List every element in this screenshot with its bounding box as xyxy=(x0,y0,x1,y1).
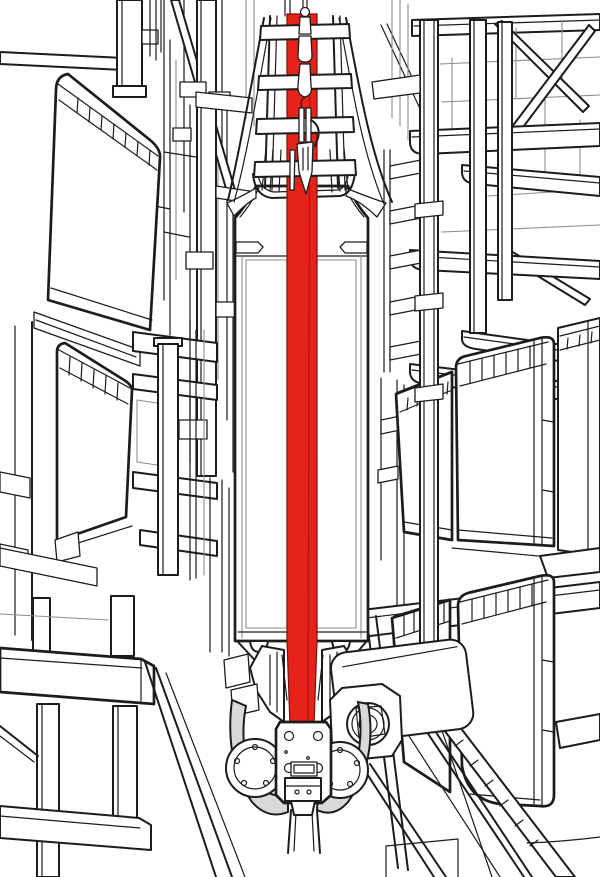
right-rack-post xyxy=(498,22,512,300)
storage-bin-right-edge xyxy=(558,318,600,556)
belt-hook xyxy=(298,64,312,97)
carriage-plate xyxy=(276,722,331,815)
carriage-foot xyxy=(291,801,315,815)
warehouse-illustration xyxy=(0,0,600,877)
warehouse-line-art xyxy=(0,0,600,877)
right-rack-front-post xyxy=(415,20,443,648)
storage-bin-lower-front xyxy=(458,575,554,806)
bin-guide-tab xyxy=(340,242,367,253)
left-rack-front-post xyxy=(197,0,216,476)
right-rack-post xyxy=(470,20,486,333)
storage-bin-right-front xyxy=(456,337,554,546)
hook-eye xyxy=(301,8,310,17)
bin-guide-tab xyxy=(236,242,263,253)
